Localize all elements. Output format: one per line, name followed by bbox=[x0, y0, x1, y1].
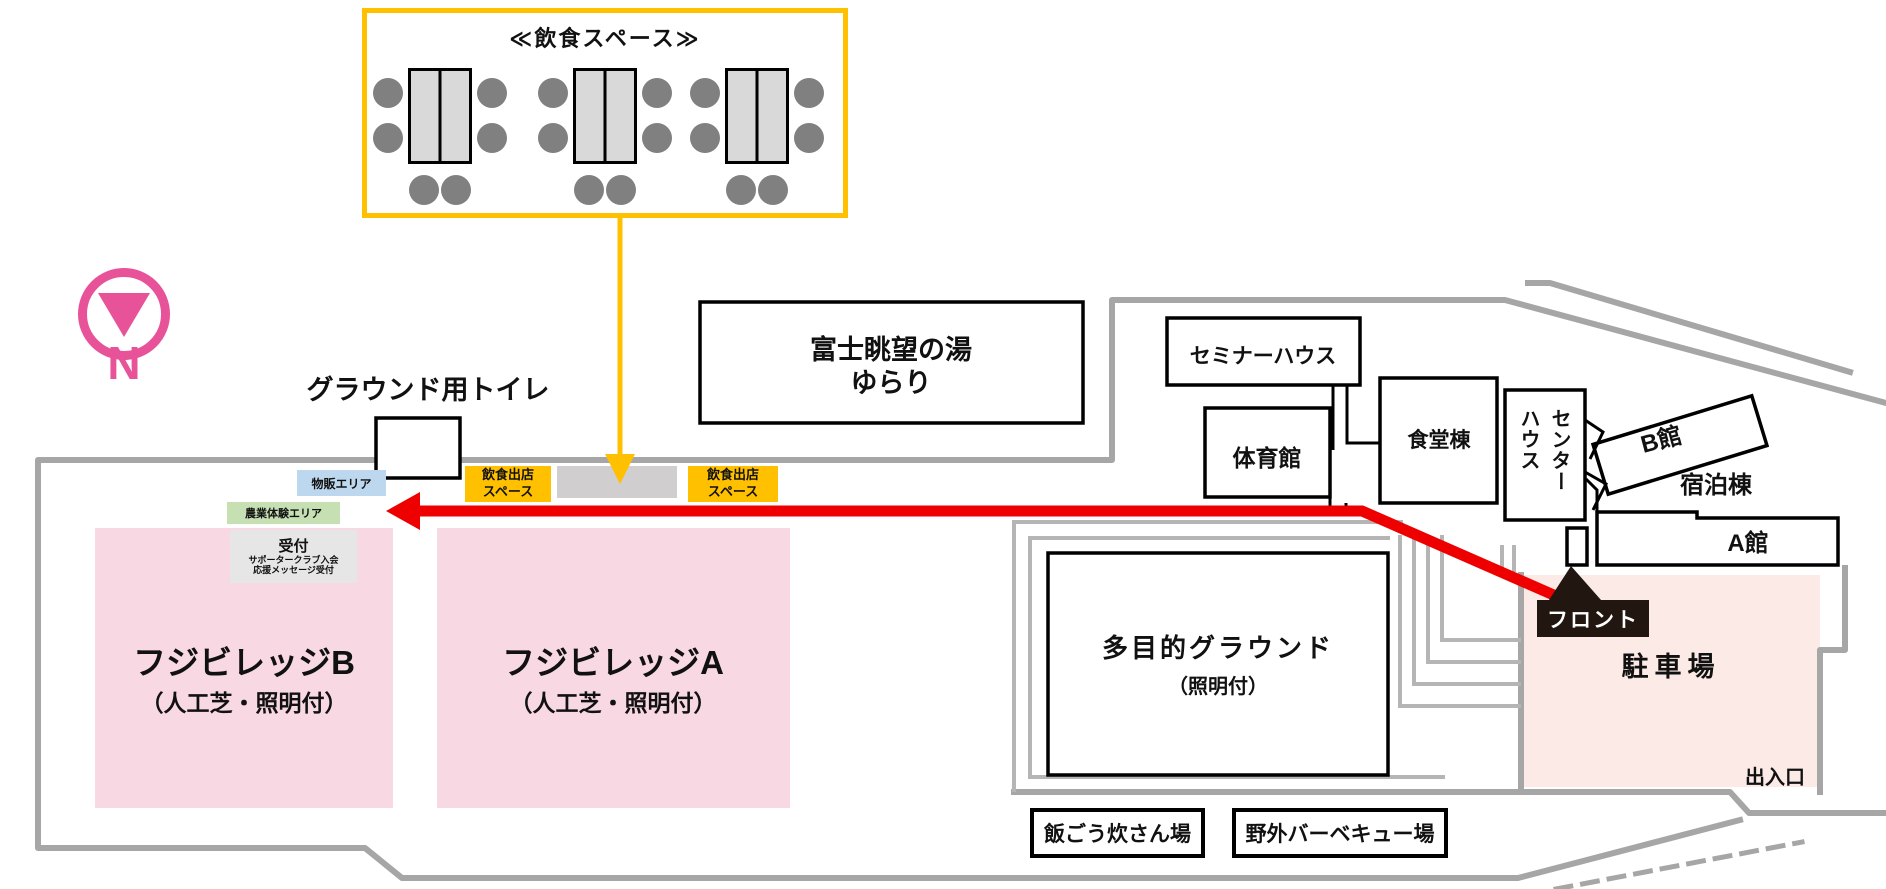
food-stall-tag-left: 飲食出店スペース bbox=[465, 466, 551, 502]
seat-icon bbox=[794, 123, 824, 153]
village-b-note: （人工芝・照明付） bbox=[141, 684, 348, 718]
route-arrow-head bbox=[386, 492, 420, 530]
multi-ground-label-line1: 多目的グラウンド bbox=[1102, 628, 1334, 665]
bbq-box: 野外バーベキュー場 bbox=[1232, 808, 1448, 858]
building-a-label: A館 bbox=[1727, 523, 1768, 558]
table-icon bbox=[573, 68, 637, 164]
seminar-house-label: セミナーハウス bbox=[1190, 340, 1337, 370]
seat-icon bbox=[794, 78, 824, 108]
seat-icon bbox=[606, 175, 636, 205]
reception-tag: 受付 サポータークラブ入会 応援メッセージ受付 bbox=[230, 530, 357, 583]
seat-icon bbox=[477, 123, 507, 153]
parking-label: 駐車場 bbox=[1622, 645, 1721, 684]
village-a-note: （人工芝・照明付） bbox=[510, 684, 717, 718]
road-dashed bbox=[1556, 842, 1802, 889]
multi-ground-label-line2: （照明付） bbox=[1168, 670, 1268, 699]
reception-line2: 応援メッセージ受付 bbox=[253, 565, 334, 575]
ground-toilet-label: グラウンド用トイレ bbox=[307, 368, 550, 407]
front-desk-label: フロント bbox=[1537, 600, 1649, 637]
dining-table-group bbox=[537, 60, 697, 210]
toilet-building bbox=[376, 418, 460, 478]
seat-icon bbox=[373, 123, 403, 153]
building-a-shape bbox=[1597, 512, 1838, 565]
seat-icon bbox=[690, 123, 720, 153]
food-stall-tag-right: 飲食出店スペース bbox=[688, 466, 778, 502]
seat-icon bbox=[477, 78, 507, 108]
gym-label: 体育館 bbox=[1233, 439, 1302, 473]
table-divider bbox=[756, 71, 759, 161]
dining-table-group bbox=[689, 60, 849, 210]
connector-seminar-dining bbox=[1333, 385, 1380, 450]
compass-north-label: N bbox=[78, 336, 170, 390]
compass-needle-icon bbox=[98, 293, 150, 337]
seat-icon bbox=[642, 78, 672, 108]
dining-building-label: 食堂棟 bbox=[1408, 424, 1471, 454]
seat-icon bbox=[642, 123, 672, 153]
merch-area-tag: 物販エリア bbox=[297, 470, 386, 496]
dining-space-title: ≪飲食スペース≫ bbox=[509, 21, 700, 53]
table-icon bbox=[408, 68, 472, 164]
facility-map: ≪飲食スペース≫ N グラウンド用トイレ 富士眺望の湯 ゆらり セミナーハウス … bbox=[0, 0, 1886, 889]
seat-icon bbox=[758, 175, 788, 205]
farm-area-tag: 農業体験エリア bbox=[227, 502, 340, 524]
yurari-label-line2: ゆらり bbox=[851, 361, 932, 400]
road-upper-right bbox=[1528, 283, 1850, 372]
dining-table-group bbox=[372, 60, 532, 210]
seat-icon bbox=[441, 175, 471, 205]
table-divider bbox=[439, 71, 442, 161]
parking-right-border bbox=[1820, 568, 1845, 792]
seat-icon bbox=[538, 78, 568, 108]
dining-space-detail-box: ≪飲食スペース≫ bbox=[362, 8, 848, 218]
seat-icon bbox=[690, 78, 720, 108]
map-base bbox=[0, 0, 1886, 889]
lodging-label: 宿泊棟 bbox=[1680, 465, 1752, 500]
reception-title: 受付 bbox=[278, 538, 308, 555]
front-building bbox=[1567, 528, 1587, 565]
entrance-label: 出入口 bbox=[1745, 761, 1805, 790]
village-b-label: フジビレッジB bbox=[133, 636, 355, 684]
rice-cooking-box: 飯ごう炊さん場 bbox=[1030, 808, 1205, 858]
center-house-label: センターハウス bbox=[1512, 408, 1574, 528]
seat-icon bbox=[373, 78, 403, 108]
village-a-label: フジビレッジA bbox=[502, 636, 724, 684]
seat-icon bbox=[409, 175, 439, 205]
table-icon bbox=[725, 68, 789, 164]
table-divider bbox=[604, 71, 607, 161]
seat-icon bbox=[574, 175, 604, 205]
seat-icon bbox=[726, 175, 756, 205]
reception-line1: サポータークラブ入会 bbox=[248, 555, 338, 565]
seat-icon bbox=[538, 123, 568, 153]
